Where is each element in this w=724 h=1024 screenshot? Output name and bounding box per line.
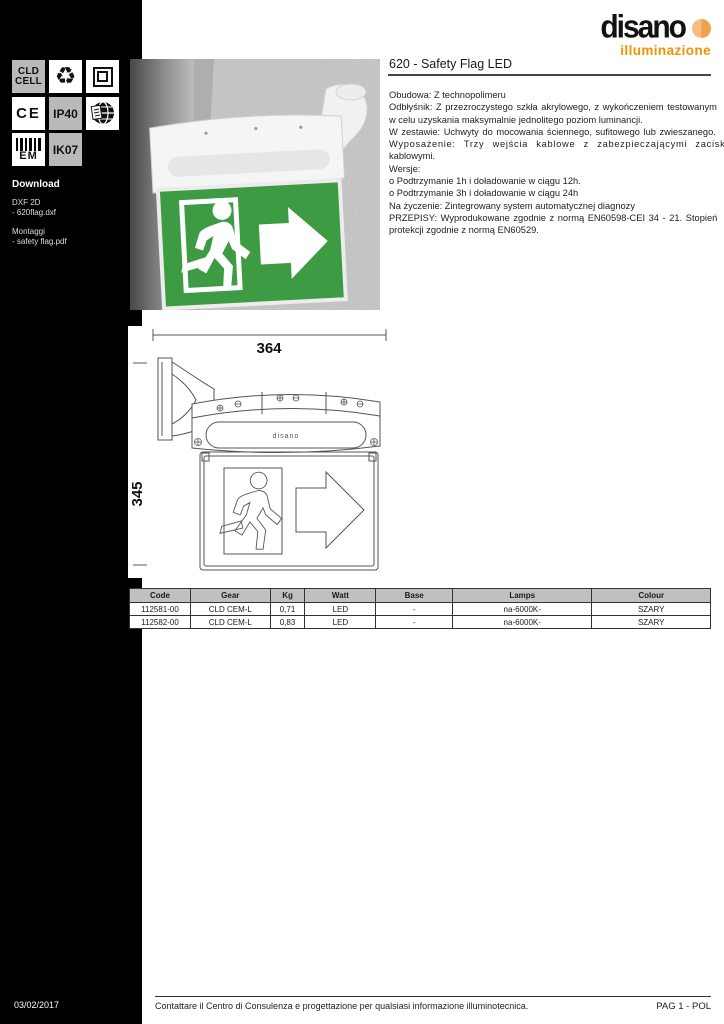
spec-table-header-row: Code Gear Kg Watt Base Lamps Colour — [130, 589, 711, 603]
download-dxf-file-link[interactable]: - 620flag.dxf — [12, 208, 132, 218]
col-header-code: Code — [130, 589, 191, 603]
description-line: Odbłyśnik: Z przezroczystego szkła akryl… — [389, 101, 713, 113]
cell-colour: SZARY — [592, 603, 711, 616]
badge-ik07: IK07 — [49, 133, 82, 166]
footer-page-label: PAG 1 - POL — [656, 1001, 711, 1012]
class-ii-double-square-icon — [86, 60, 119, 93]
table-row: 112582-00 CLD CEM-L 0,83 LED - na-6000K-… — [130, 616, 711, 629]
cell-kg: 0,71 — [270, 603, 305, 616]
cell-watt: LED — [305, 603, 376, 616]
description-line: PRZEPISY: Wyprodukowane zgodnie z normą … — [389, 212, 713, 224]
cell-code: 112582-00 — [130, 616, 191, 629]
badge-cld-cell: CLD CELL — [12, 60, 45, 93]
col-header-watt: Watt — [305, 589, 376, 603]
spec-table: Code Gear Kg Watt Base Lamps Colour 1125… — [129, 588, 711, 629]
cell-colour: SZARY — [592, 616, 711, 629]
description-line: w celu uzyskania maksymalnie jednolitego… — [389, 114, 713, 126]
brand-wordmark: disano — [600, 12, 685, 44]
col-header-kg: Kg — [270, 589, 305, 603]
download-section: Download DXF 2D - 620flag.dxf Montaggi -… — [12, 179, 132, 256]
download-dxf-group: DXF 2D - 620flag.dxf — [12, 198, 132, 218]
description-line: Wyposażenie: Trzy wejścia kablowe z zabe… — [389, 138, 713, 150]
cell-watt: LED — [305, 616, 376, 629]
product-photo — [130, 59, 380, 310]
description-line: Na życzenie: Zintegrowany system automat… — [389, 200, 713, 212]
download-dxf-label: DXF 2D — [12, 198, 132, 208]
drawing-width-dimension: 364 — [256, 340, 282, 357]
col-header-base: Base — [376, 589, 453, 603]
footer-note: Contattare il Centro di Consulenza e pro… — [155, 1001, 528, 1011]
description-line: o Podtrzymanie 3h i doładowanie w ciągu … — [389, 187, 713, 199]
recycle-icon: ♻ — [49, 60, 82, 93]
brand-logo: disano illuminazione — [520, 13, 711, 58]
drawing-lens-logo-text: disano — [273, 433, 300, 440]
description-line: Wersje: — [389, 163, 713, 175]
table-row: 112581-00 CLD CEM-L 0,71 LED - na-6000K-… — [130, 603, 711, 616]
download-montaggi-file-link[interactable]: - safety flag.pdf — [12, 237, 132, 247]
cell-lamps: na-6000K- — [453, 603, 592, 616]
brand-dot-icon — [692, 19, 711, 38]
description-line: kablowymi. — [389, 150, 713, 162]
product-description: Obudowa: Z technopolimeru Odbłyśnik: Z p… — [389, 89, 713, 237]
photo-exit-sign — [149, 112, 351, 310]
badge-cld-cell-label: CLD CELL — [15, 67, 42, 87]
cell-lamps: na-6000K- — [453, 616, 592, 629]
download-title: Download — [12, 179, 132, 190]
page-title: 620 - Safety Flag LED — [389, 57, 512, 71]
datasheet-page: CLD CELL ♻ CE IP40 — [0, 0, 724, 1024]
download-montaggi-label: Montaggi — [12, 227, 132, 237]
globe-catalog-icon — [86, 97, 119, 130]
cell-kg: 0,83 — [270, 616, 305, 629]
col-header-colour: Colour — [592, 589, 711, 603]
em-barcode-icon: EM — [12, 133, 45, 166]
sidebar: CLD CELL ♻ CE IP40 — [0, 0, 142, 1024]
footer-rule — [155, 996, 711, 997]
cell-base: - — [376, 616, 453, 629]
ce-mark-icon: CE — [12, 97, 45, 130]
description-line: Obudowa: Z technopolimeru — [389, 89, 713, 101]
cell-base: - — [376, 603, 453, 616]
description-line: o Podtrzymanie 1h i doładowanie w ciągu … — [389, 175, 713, 187]
badge-ip40: IP40 — [49, 97, 82, 130]
col-header-gear: Gear — [191, 589, 271, 603]
drawing-height-dimension: 345 — [129, 481, 146, 506]
cell-gear: CLD CEM-L — [191, 603, 271, 616]
technical-drawing: 364 345 disano — [128, 326, 393, 578]
footer-date: 03/02/2017 — [14, 1000, 59, 1010]
description-line: W zestawie: Uchwyty do mocowania ścienne… — [389, 126, 713, 138]
cell-gear: CLD CEM-L — [191, 616, 271, 629]
download-montaggi-group: Montaggi - safety flag.pdf — [12, 227, 132, 247]
cell-code: 112581-00 — [130, 603, 191, 616]
col-header-lamps: Lamps — [453, 589, 592, 603]
title-rule — [388, 74, 711, 76]
description-line: protekcji zgodnie z normą EN60529. — [389, 224, 713, 236]
